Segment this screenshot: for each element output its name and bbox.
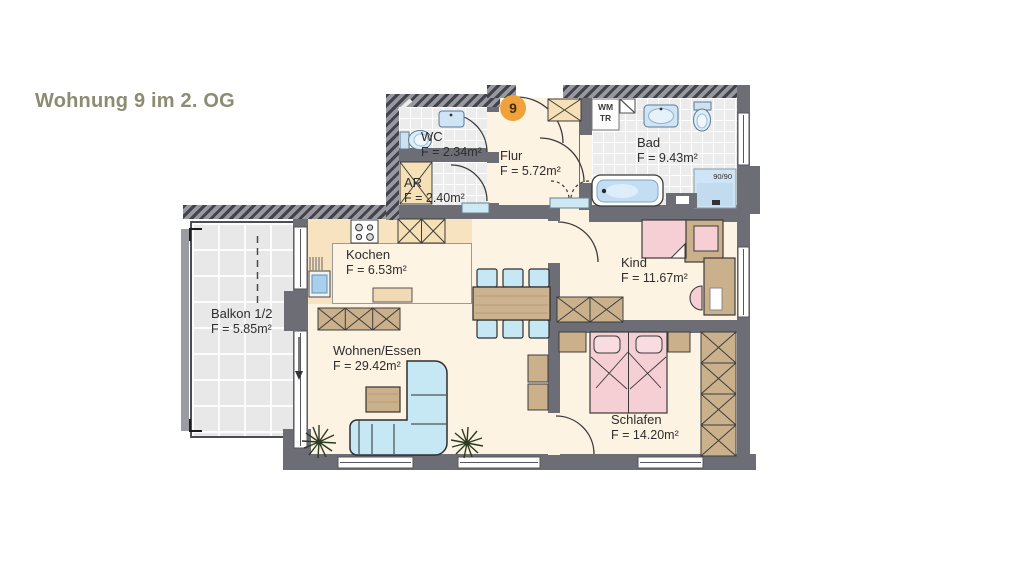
room-label-wc: WC F = 2.34m² [421, 129, 482, 160]
wall [487, 107, 499, 206]
unit-number-badge: 9 [500, 95, 526, 121]
dryer-label: TR [592, 113, 619, 124]
floor-plan: WC F = 2.34m² AR F = 2.40m² Flur F = 5.7… [0, 0, 1030, 568]
room-name: WC [421, 129, 482, 145]
wall [548, 320, 739, 333]
room-area: F = 2.40m² [404, 191, 465, 206]
room-name: Kind [621, 255, 688, 271]
room-area: F = 6.53m² [346, 263, 407, 278]
room-area: F = 5.85m² [211, 322, 272, 337]
wall [487, 85, 750, 98]
room-area: F = 5.72m² [500, 164, 561, 179]
room-name: Bad [637, 135, 698, 151]
room-name: Flur [500, 148, 561, 164]
washer-label: WM [592, 102, 619, 113]
room-area: F = 2.34m² [421, 145, 482, 160]
wall [183, 205, 400, 219]
room-label-kitchen: Kochen F = 6.53m² [346, 247, 407, 278]
wall [737, 85, 750, 470]
room-label-living: Wohnen/Essen F = 29.42m² [333, 343, 421, 374]
room-name: Schlafen [611, 412, 679, 428]
wall [283, 454, 756, 470]
room-label-storage: AR F = 2.40m² [404, 175, 465, 206]
room-name: Kochen [346, 247, 407, 263]
room-name: Wohnen/Essen [333, 343, 421, 359]
room-label-bedroom: Schlafen F = 14.20m² [611, 412, 679, 443]
balcony-railing [181, 229, 189, 431]
room-label-child: Kind F = 11.67m² [621, 255, 688, 286]
room-area: F = 9.43m² [637, 151, 698, 166]
room-label-bathroom: Bad F = 9.43m² [637, 135, 698, 166]
wall [293, 219, 308, 455]
room-area: F = 29.42m² [333, 359, 421, 374]
wall-pier [750, 166, 760, 214]
shower-size-label: 90/90 [700, 172, 732, 181]
room-area: F = 14.20m² [611, 428, 679, 443]
wall [589, 205, 737, 222]
room-label-balcony: Balkon 1/2 F = 5.85m² [211, 306, 272, 337]
floor-plan-page: Wohnung 9 im 2. OG [0, 0, 1030, 568]
room-label-hall: Flur F = 5.72m² [500, 148, 561, 179]
wall [579, 98, 592, 210]
room-name: AR [404, 175, 465, 191]
room-area: F = 11.67m² [621, 271, 688, 286]
room-name: Balkon 1/2 [211, 306, 272, 322]
washer-dryer-label: WM TR [592, 102, 619, 124]
wall [386, 94, 500, 107]
wall [386, 94, 399, 220]
wall [399, 205, 551, 219]
